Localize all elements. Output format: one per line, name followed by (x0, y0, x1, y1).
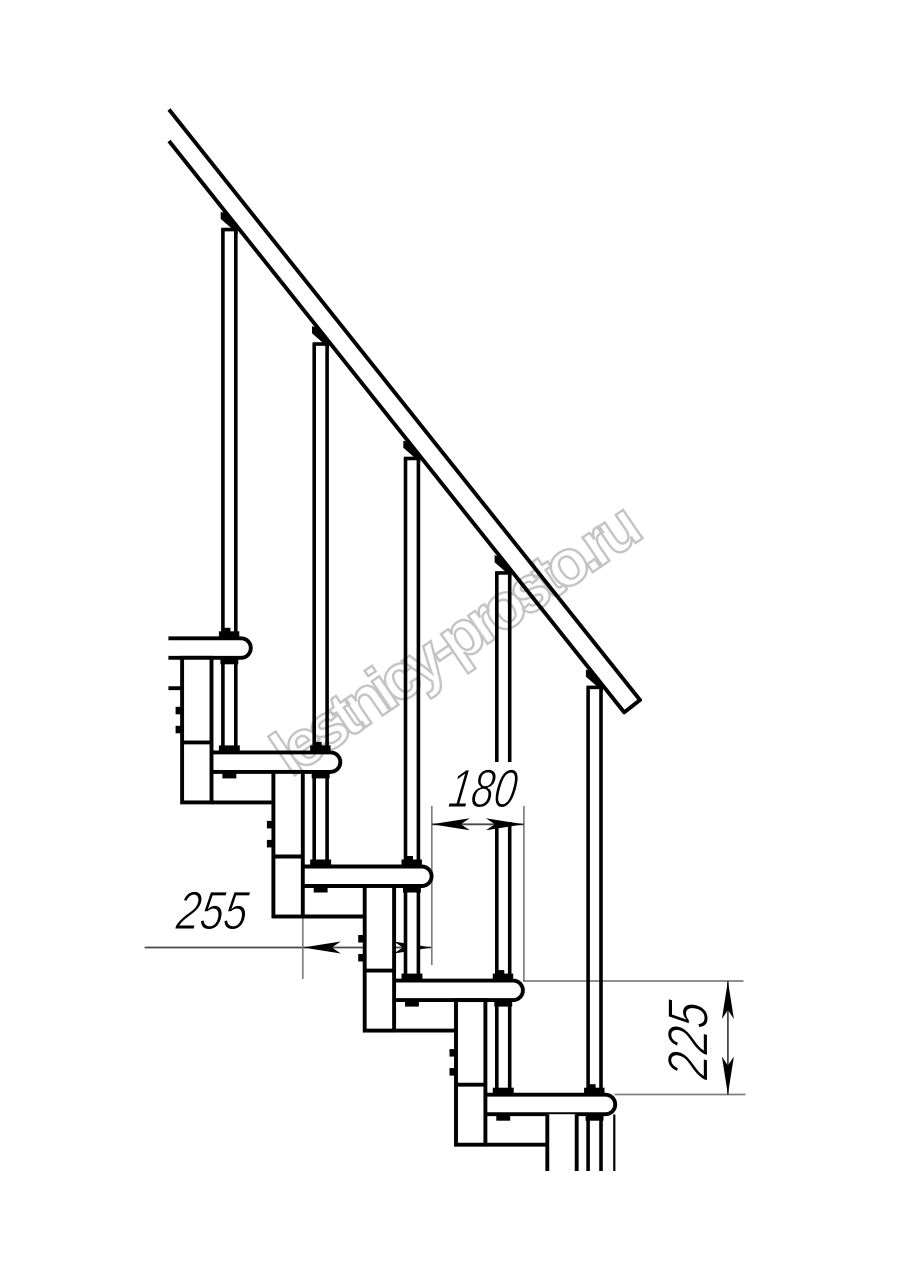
svg-text:255: 255 (172, 881, 252, 941)
svg-text:180: 180 (445, 760, 521, 820)
svg-text:225: 225 (657, 997, 721, 1083)
